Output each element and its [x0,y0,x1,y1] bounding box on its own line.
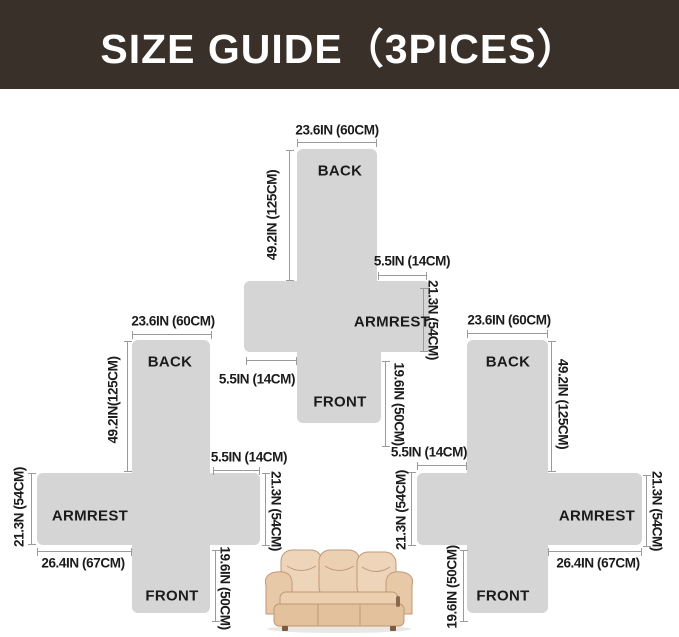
header-banner: SIZE GUIDE（3PICES） [0,0,679,89]
panel-label-front: FRONT [313,394,366,411]
dim-label-stub-top: 5.5IN (14CM) [391,445,467,460]
dim-line-outer-arm-height [31,473,32,545]
dim-label-height: 49.2IN(125CM) [106,356,121,443]
dim-line-height [127,341,128,472]
page-title: SIZE GUIDE（3PICES） [100,15,578,75]
dim-line-front-depth [215,550,216,622]
dim-label-stub-top: 5.5IN (14CM) [211,450,287,465]
dim-label-inner-arm-height: 21.3N (54CM) [394,470,409,550]
dim-label-inner-arm-height: 21.3N (54CM) [269,471,284,551]
panel-label-back: BACK [486,354,531,371]
front-panel [297,345,381,423]
dim-line-front-depth [385,361,386,447]
dim-label-arm-top: 5.5IN (14CM) [374,254,450,269]
dim-line-height [551,341,552,472]
dim-label-width: 23.6IN (60CM) [295,123,378,138]
dim-label-outer-arm-height: 21.3N (54CM) [12,467,27,547]
dim-label-arm-length: 26.4IN (67CM) [41,556,124,571]
panel-label-back: BACK [148,354,193,371]
dim-label-height: 49.2IN (125CM) [556,359,571,449]
dim-line-arm-top [378,275,427,276]
dim-label-front-depth: 19.6IN (50CM) [218,546,233,629]
panel-label-front: FRONT [145,588,198,605]
size-guide-infographic: SIZE GUIDE（3PICES） 23.6IN (60CM) 49.2IN … [0,0,679,637]
dim-line-inner-arm-height [265,473,266,546]
panel-label-armrest: ARMREST [559,508,635,525]
dim-label-front-depth: 19.6IN (50CM) [445,545,460,628]
dim-label-arm-length: 26.4IN (67CM) [556,556,639,571]
dim-line-arm-length [548,551,642,552]
dim-line-stub-top [417,465,467,466]
dim-line-outer-arm-height [646,475,647,547]
dim-label-arm-bottom-left: 5.5IN (14CM) [219,372,295,387]
dim-line-arm-bottom-left [246,360,297,361]
dim-line-width [297,142,377,143]
dim-line-front-depth [463,550,464,622]
dim-line-arm-length [37,551,132,552]
dim-label-width: 23.6IN (60CM) [131,314,214,329]
dim-label-front-depth: 19.6IN (50CM) [392,362,407,445]
sofa-icon [258,546,420,634]
panel-label-armrest: ARMREST [354,314,430,331]
dim-line-stub-top [213,470,260,471]
dim-label-height: 49.2IN (125CM) [265,170,280,260]
dim-label-outer-arm-height: 21.3N (54CM) [650,471,665,551]
panel-label-back: BACK [318,163,363,180]
dim-line-width [132,334,212,335]
dim-line-width [467,333,548,334]
panel-label-front: FRONT [476,588,529,605]
dim-line-inner-arm-height [411,472,412,546]
panel-label-armrest: ARMREST [52,508,128,525]
dim-label-width: 23.6IN (60CM) [467,313,550,328]
dim-line-height [289,150,290,281]
